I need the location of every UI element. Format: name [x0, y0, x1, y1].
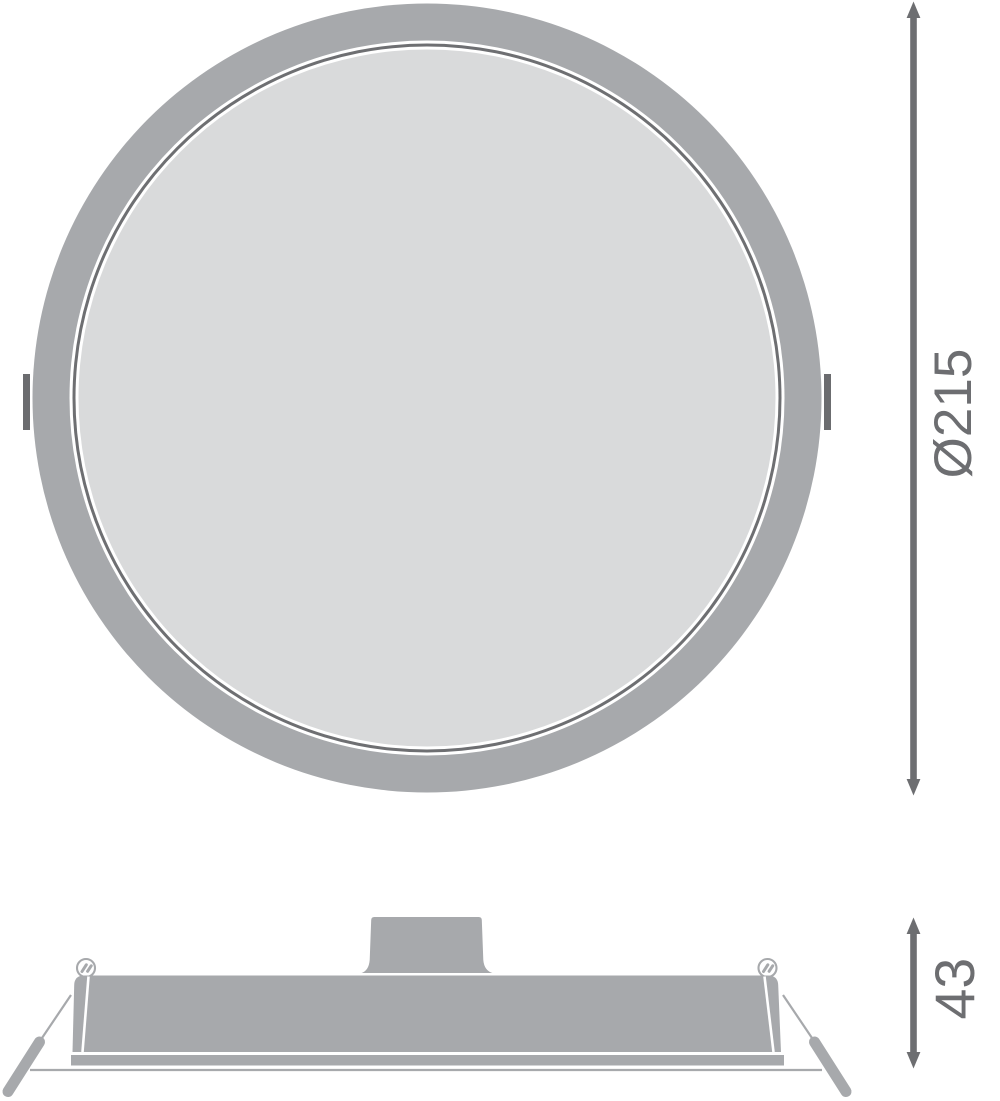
- svg-text:43: 43: [924, 958, 986, 1020]
- svg-text:Ø215: Ø215: [924, 349, 983, 479]
